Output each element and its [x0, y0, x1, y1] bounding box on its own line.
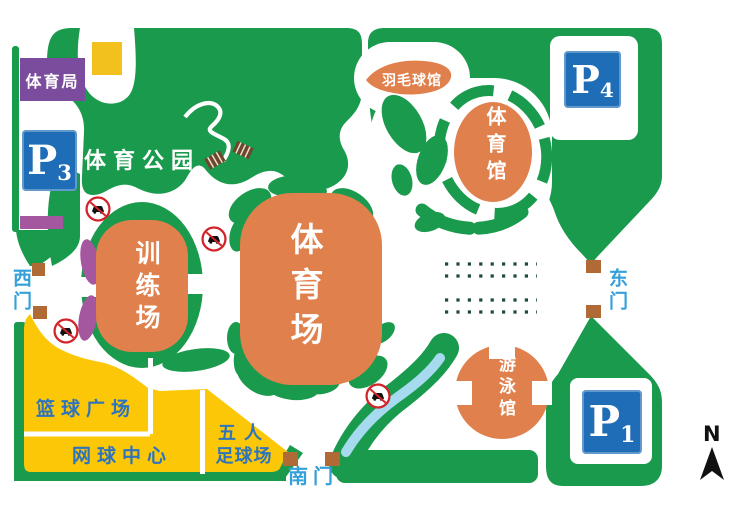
gymnasium-label: 体育馆 — [481, 106, 510, 187]
training-ground-label: 训练场 — [128, 240, 164, 336]
yellow-plot — [92, 42, 122, 75]
west-boundary-strip — [12, 46, 19, 232]
sports-bureau-label: 体育局 — [20, 58, 85, 101]
swimming-hall-label: 游泳馆 — [493, 355, 518, 421]
west-gate-label: 西门 — [8, 268, 35, 314]
plaza-dots — [445, 264, 537, 312]
parking-sign-p1: P1 — [582, 390, 642, 454]
compass-arrow-icon — [698, 447, 726, 481]
tennis-center-label: 网球中心 — [72, 441, 172, 468]
basketball-plaza-label: 篮球广场 — [36, 394, 136, 421]
east-gate-label: 东门 — [604, 268, 631, 314]
compass-north-label: N — [703, 422, 721, 446]
no-cars-sign-icon — [55, 320, 78, 343]
parking-sign-p4: P4 — [564, 51, 621, 108]
south-gate-label: 南门 — [288, 460, 338, 489]
futsal-field-label: 五人 足球场 — [204, 423, 284, 468]
no-cars-sign-icon — [203, 228, 226, 251]
no-cars-sign-icon — [367, 385, 390, 408]
park-map: 体育局 P3 P4 P1 体育公园 羽毛球馆 体育馆 训练场 体育场 游泳馆 篮… — [0, 0, 737, 510]
badminton-hall-label: 羽毛球馆 — [372, 70, 452, 90]
park-name-label: 体育公园 — [84, 143, 200, 175]
purple-planter-bar — [20, 216, 63, 229]
stadium-label: 体育场 — [280, 222, 328, 357]
no-cars-sign-icon — [87, 198, 110, 221]
parking-sign-p3: P3 — [22, 130, 77, 191]
